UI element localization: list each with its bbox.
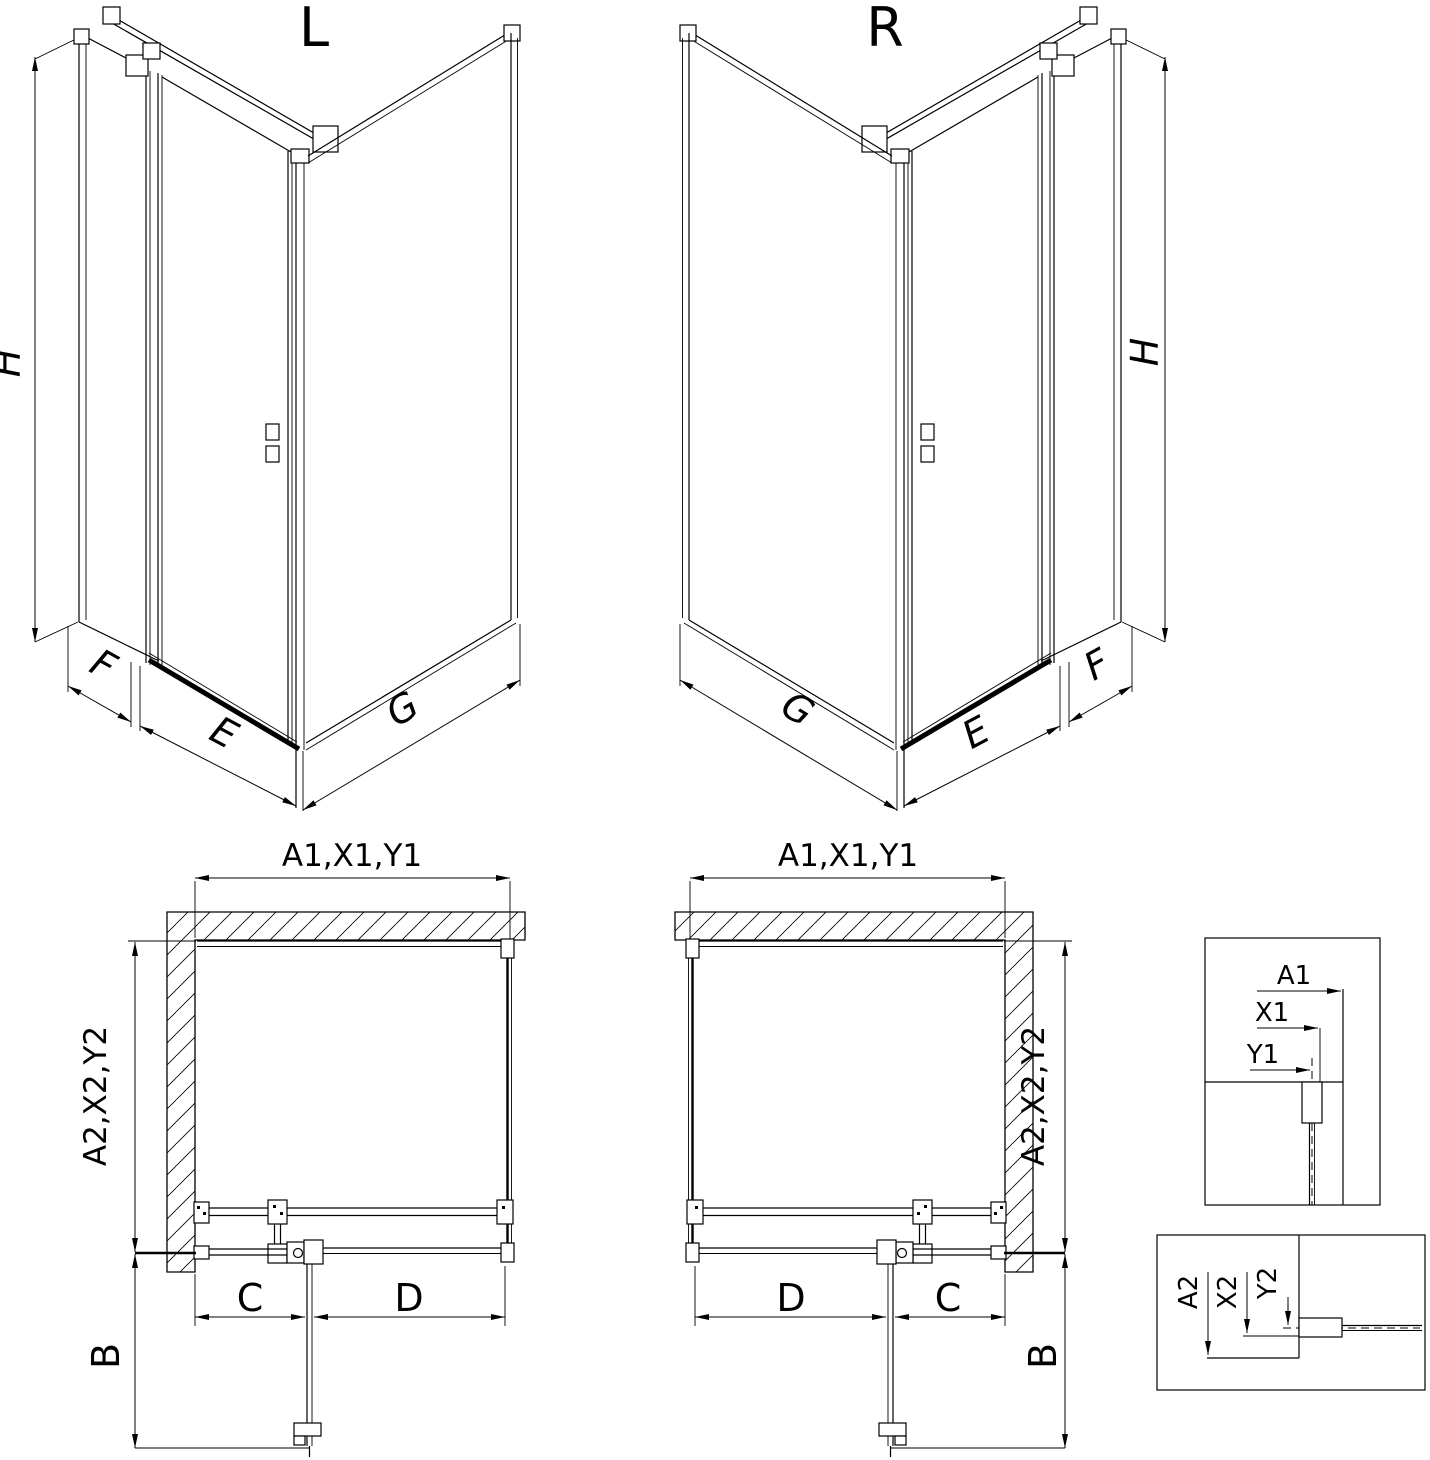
- label-door-width-right: E: [955, 707, 997, 757]
- plan-left-swing-label: B: [84, 1343, 128, 1369]
- wall-hatched-left: [167, 912, 525, 1272]
- plan-left-width-label: A1,X1,Y1: [282, 838, 422, 874]
- iso-view-right: R H F E G: [680, 0, 1167, 811]
- label-height-right: H: [1123, 338, 1167, 367]
- detail-top-a-label: A1: [1277, 961, 1311, 991]
- detail-top-y-label: Y1: [1246, 1040, 1279, 1070]
- plan-right-door-label: D: [776, 1276, 805, 1320]
- label-return-panel-left: G: [378, 682, 426, 735]
- detail-bottom-x-label: X2: [1213, 1275, 1243, 1309]
- label-height-left: H: [0, 349, 29, 378]
- view-title-right: R: [866, 0, 904, 59]
- label-side-panel-left: F: [83, 640, 124, 690]
- detail-bottom-frame: [1157, 1235, 1425, 1390]
- iso-view-left: L H F E G: [0, 0, 520, 811]
- detail-bottom-y-label: Y2: [1253, 1267, 1283, 1300]
- label-return-panel-right: G: [774, 682, 822, 735]
- detail-inset-bottom: A2 X2 Y2: [1157, 1235, 1425, 1390]
- wall-hatched-right: [675, 912, 1033, 1272]
- plan-left-door-label: D: [394, 1276, 423, 1320]
- view-title-left: L: [299, 0, 329, 59]
- plan-left-depth-label: A2,X2,Y2: [78, 1026, 114, 1166]
- label-door-width-left: E: [203, 707, 245, 757]
- plan-right-fixed-label: C: [935, 1276, 962, 1320]
- detail-inset-top: A1 X1 Y1: [1205, 938, 1380, 1205]
- plan-right-width-label: A1,X1,Y1: [778, 838, 918, 874]
- detail-top-profile: [1302, 1082, 1322, 1123]
- detail-bottom-profile: [1299, 1318, 1342, 1337]
- detail-bottom-a-label: A2: [1174, 1275, 1204, 1309]
- plan-right-depth-label: A2,X2,Y2: [1016, 1026, 1052, 1166]
- label-side-panel-right: F: [1076, 640, 1117, 690]
- shower-enclosure-dimension-diagram: L H F E G R H F E G A1,X1,Y1 A2,X2,Y2 C …: [0, 0, 1430, 1460]
- plan-view-right: A1,X1,Y1 A2,X2,Y2 D C B: [675, 838, 1072, 1457]
- plan-left-fixed-label: C: [237, 1276, 264, 1320]
- technical-drawing-page: L H F E G R H F E G A1,X1,Y1 A2,X2,Y2 C …: [0, 0, 1430, 1460]
- detail-top-x-label: X1: [1255, 998, 1289, 1028]
- plan-view-left: A1,X1,Y1 A2,X2,Y2 C D B: [78, 838, 525, 1457]
- plan-right-swing-label: B: [1021, 1343, 1065, 1369]
